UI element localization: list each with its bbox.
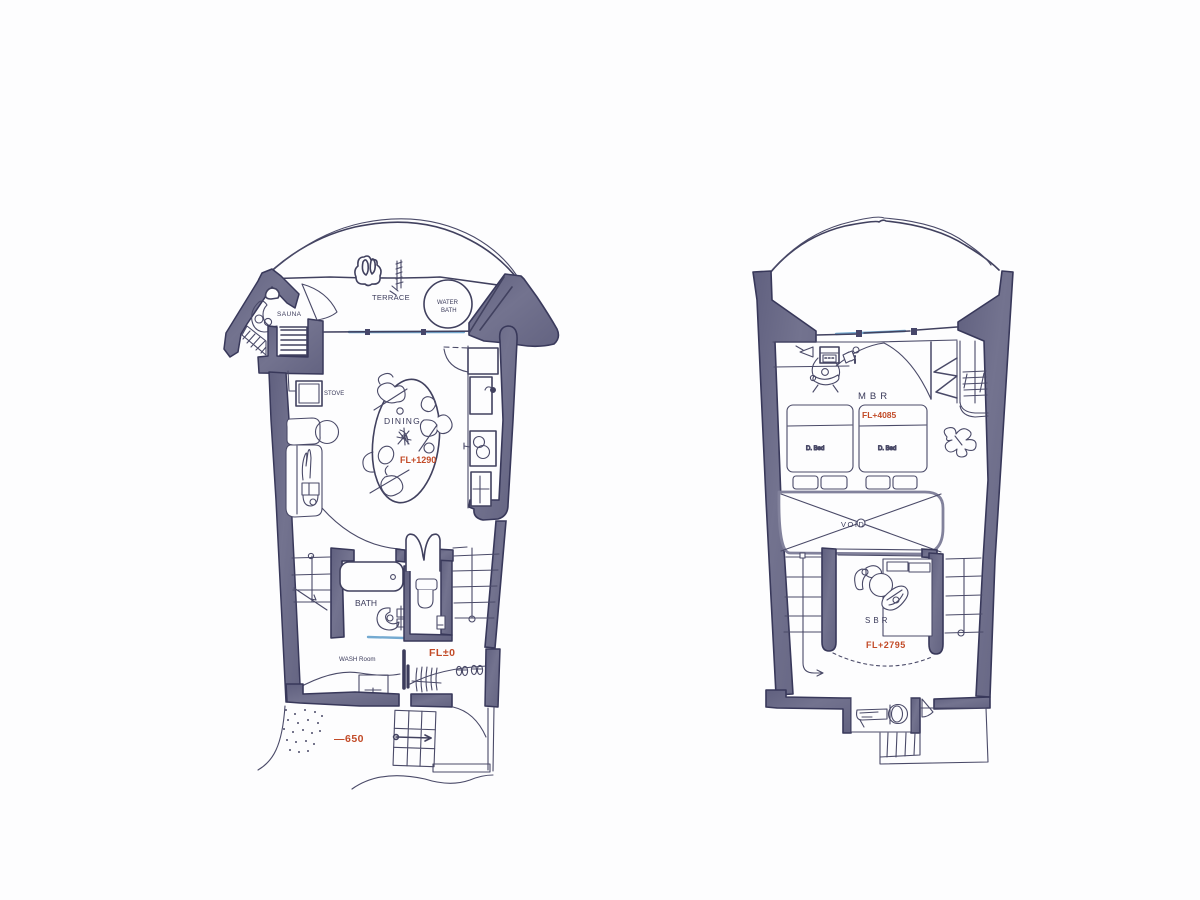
svg-text:FL+1290: FL+1290 (400, 455, 436, 465)
svg-text:VOID: VOID (841, 520, 865, 529)
svg-text:WASH Room: WASH Room (339, 656, 376, 663)
svg-text:BATH: BATH (441, 308, 457, 314)
svg-text:D. Bed: D. Bed (806, 446, 824, 452)
svg-text:—650: —650 (334, 733, 364, 745)
svg-text:MBR: MBR (858, 391, 891, 402)
svg-text:FL+2795: FL+2795 (866, 640, 906, 650)
svg-text:DINING: DINING (384, 416, 421, 426)
svg-text:TERRACE: TERRACE (372, 293, 410, 302)
svg-text:WATER: WATER (437, 300, 459, 306)
svg-text:SBR: SBR (865, 616, 890, 625)
svg-text:SAUNA: SAUNA (277, 311, 302, 318)
svg-text:FL+4085: FL+4085 (862, 410, 897, 420)
svg-text:STOVE: STOVE (324, 391, 344, 397)
svg-text:D. Bed: D. Bed (878, 446, 896, 452)
svg-text:BATH: BATH (355, 598, 377, 608)
svg-text:FL±0: FL±0 (429, 647, 455, 659)
